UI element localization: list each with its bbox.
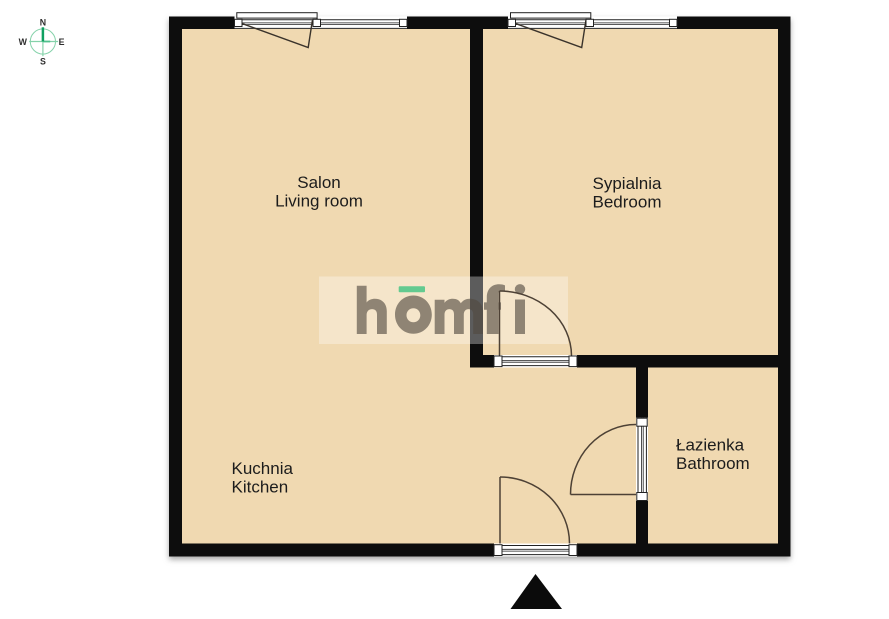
svg-text:Salon: Salon xyxy=(297,173,340,192)
svg-text:S: S xyxy=(40,57,46,67)
svg-text:Bedroom: Bedroom xyxy=(593,193,662,212)
svg-text:Living room: Living room xyxy=(275,191,363,210)
svg-text:W: W xyxy=(19,37,28,47)
svg-text:Kuchnia: Kuchnia xyxy=(232,459,294,478)
svg-text:Łazienka: Łazienka xyxy=(676,436,745,455)
svg-text:Bathroom: Bathroom xyxy=(676,454,750,473)
svg-text:Kitchen: Kitchen xyxy=(232,478,289,497)
svg-text:N: N xyxy=(40,18,46,28)
svg-text:E: E xyxy=(59,37,65,47)
svg-text:Sypialnia: Sypialnia xyxy=(593,174,663,193)
